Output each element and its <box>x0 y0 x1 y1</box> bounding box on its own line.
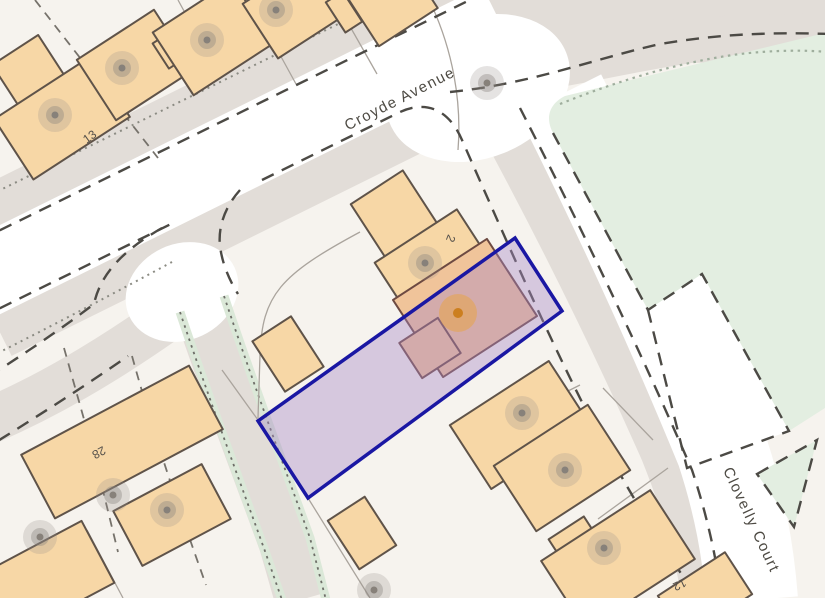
address-marker[interactable] <box>470 66 504 100</box>
selected-address-marker[interactable] <box>439 294 477 332</box>
building <box>0 521 114 598</box>
address-marker[interactable] <box>150 493 184 527</box>
address-marker[interactable] <box>357 573 391 598</box>
address-marker[interactable] <box>105 51 139 85</box>
map-viewport[interactable]: Croyde Avenue Clovelly Court 13 28 2 12 <box>0 0 825 598</box>
address-marker[interactable] <box>23 520 57 554</box>
address-marker[interactable] <box>408 246 442 280</box>
map-canvas[interactable]: Croyde Avenue Clovelly Court 13 28 2 12 <box>0 0 825 598</box>
building <box>328 497 396 570</box>
address-marker[interactable] <box>190 23 224 57</box>
address-marker[interactable] <box>505 396 539 430</box>
address-marker[interactable] <box>548 453 582 487</box>
address-marker[interactable] <box>587 531 621 565</box>
address-marker[interactable] <box>38 98 72 132</box>
address-marker[interactable] <box>96 478 130 512</box>
